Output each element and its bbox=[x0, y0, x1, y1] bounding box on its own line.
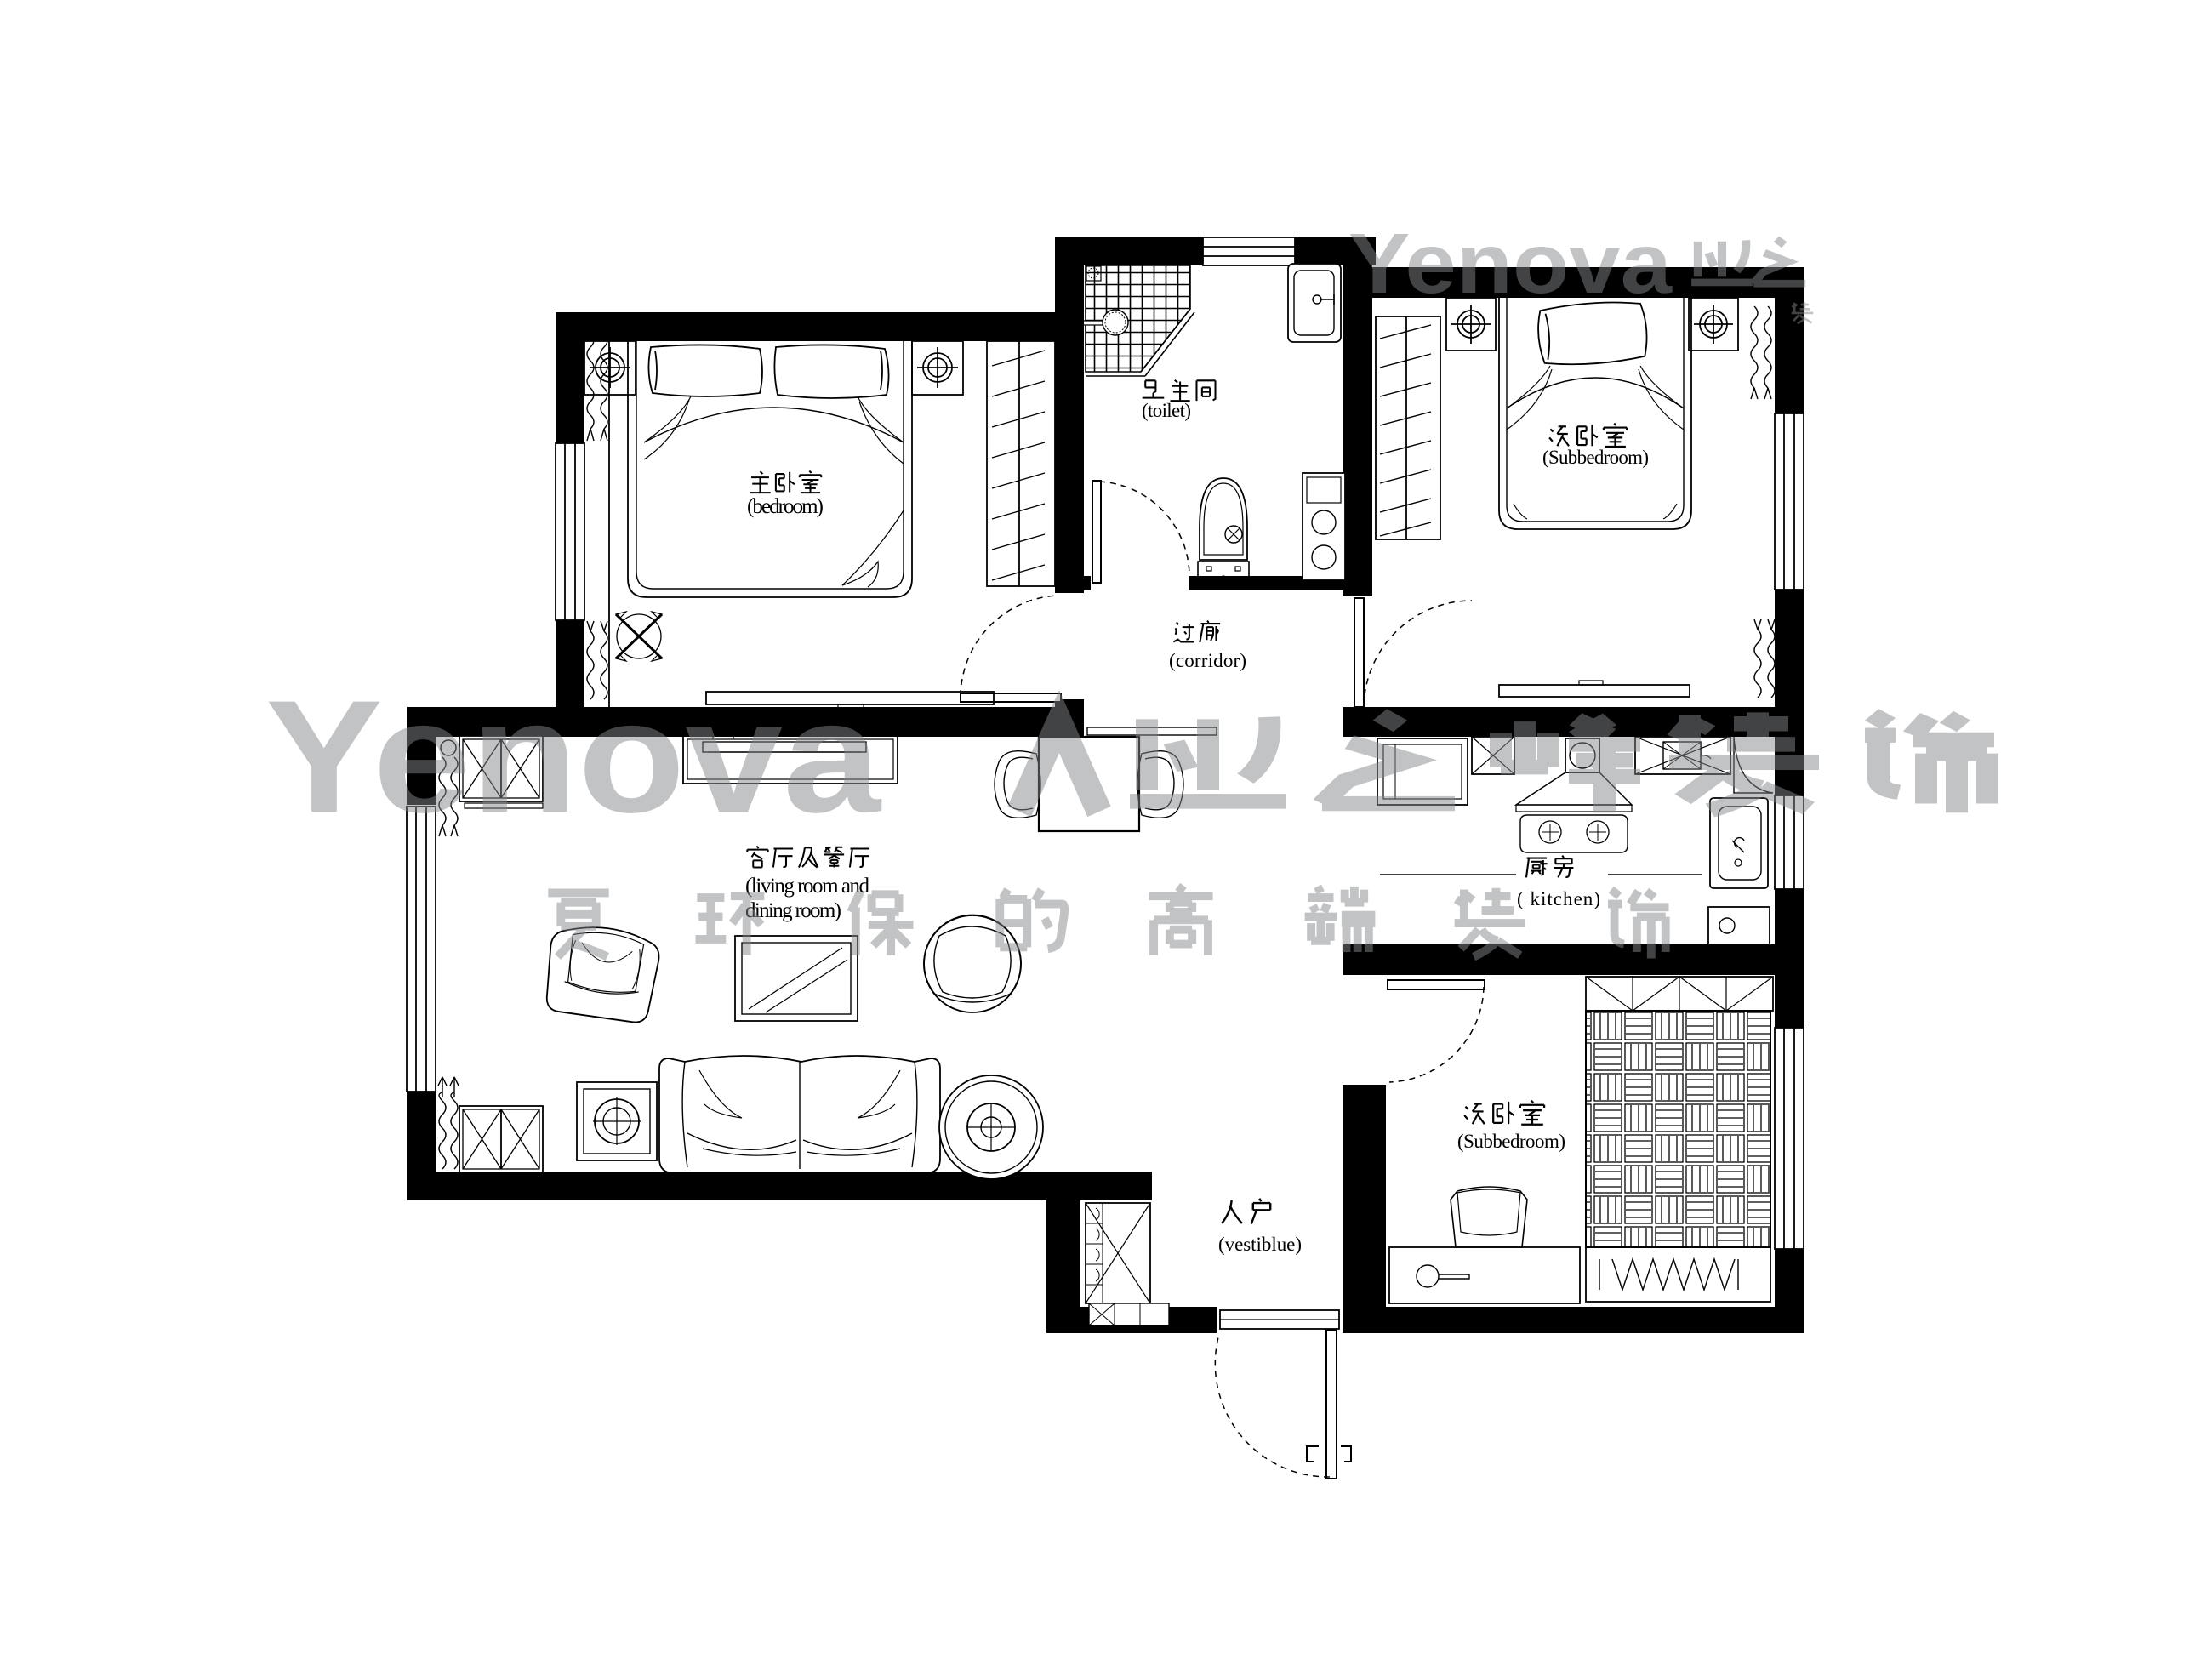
svg-text:(toilet): (toilet) bbox=[1142, 400, 1191, 421]
svg-text:(bedroom): (bedroom) bbox=[747, 495, 824, 518]
svg-text:(vestiblue): (vestiblue) bbox=[1218, 1234, 1302, 1255]
svg-text:Yenova: Yenova bbox=[1348, 216, 1673, 311]
svg-text:(corridor): (corridor) bbox=[1169, 650, 1246, 671]
svg-text:(Subbedroom): (Subbedroom) bbox=[1457, 1131, 1565, 1152]
svg-text:Yenova: Yenova bbox=[265, 667, 882, 846]
svg-text:( kitchen): ( kitchen) bbox=[1517, 888, 1600, 909]
svg-text:(Subbedroom): (Subbedroom) bbox=[1542, 447, 1649, 468]
